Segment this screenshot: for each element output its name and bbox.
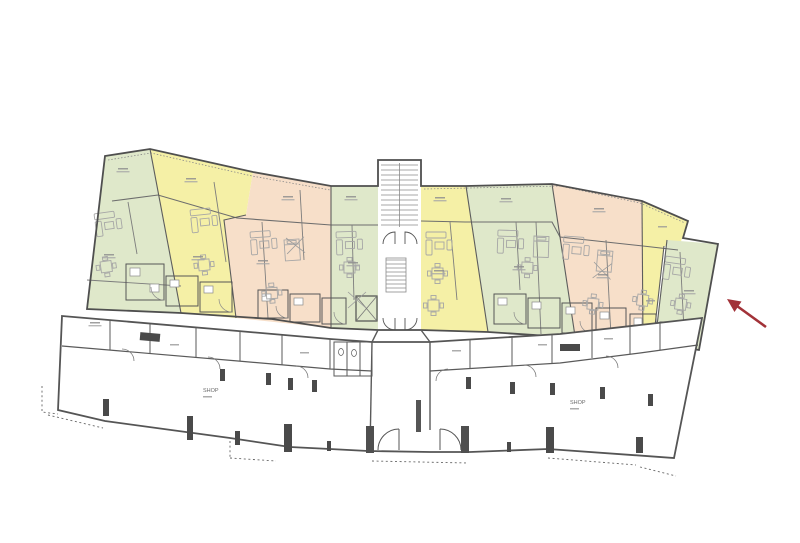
floor-plan-svg: SHOP SHOP [0,0,800,543]
apartment-band [87,149,718,350]
dark-service-block-right [560,344,580,351]
shop-band: SHOP SHOP [42,316,702,476]
highlight-arrow-icon [727,299,766,327]
shop-right-label: SHOP [570,400,586,406]
elevator [356,296,377,321]
floor-plan-canvas: SHOP SHOP [0,0,800,543]
shop-left-label: SHOP [203,388,219,394]
unit-fills [87,149,718,350]
